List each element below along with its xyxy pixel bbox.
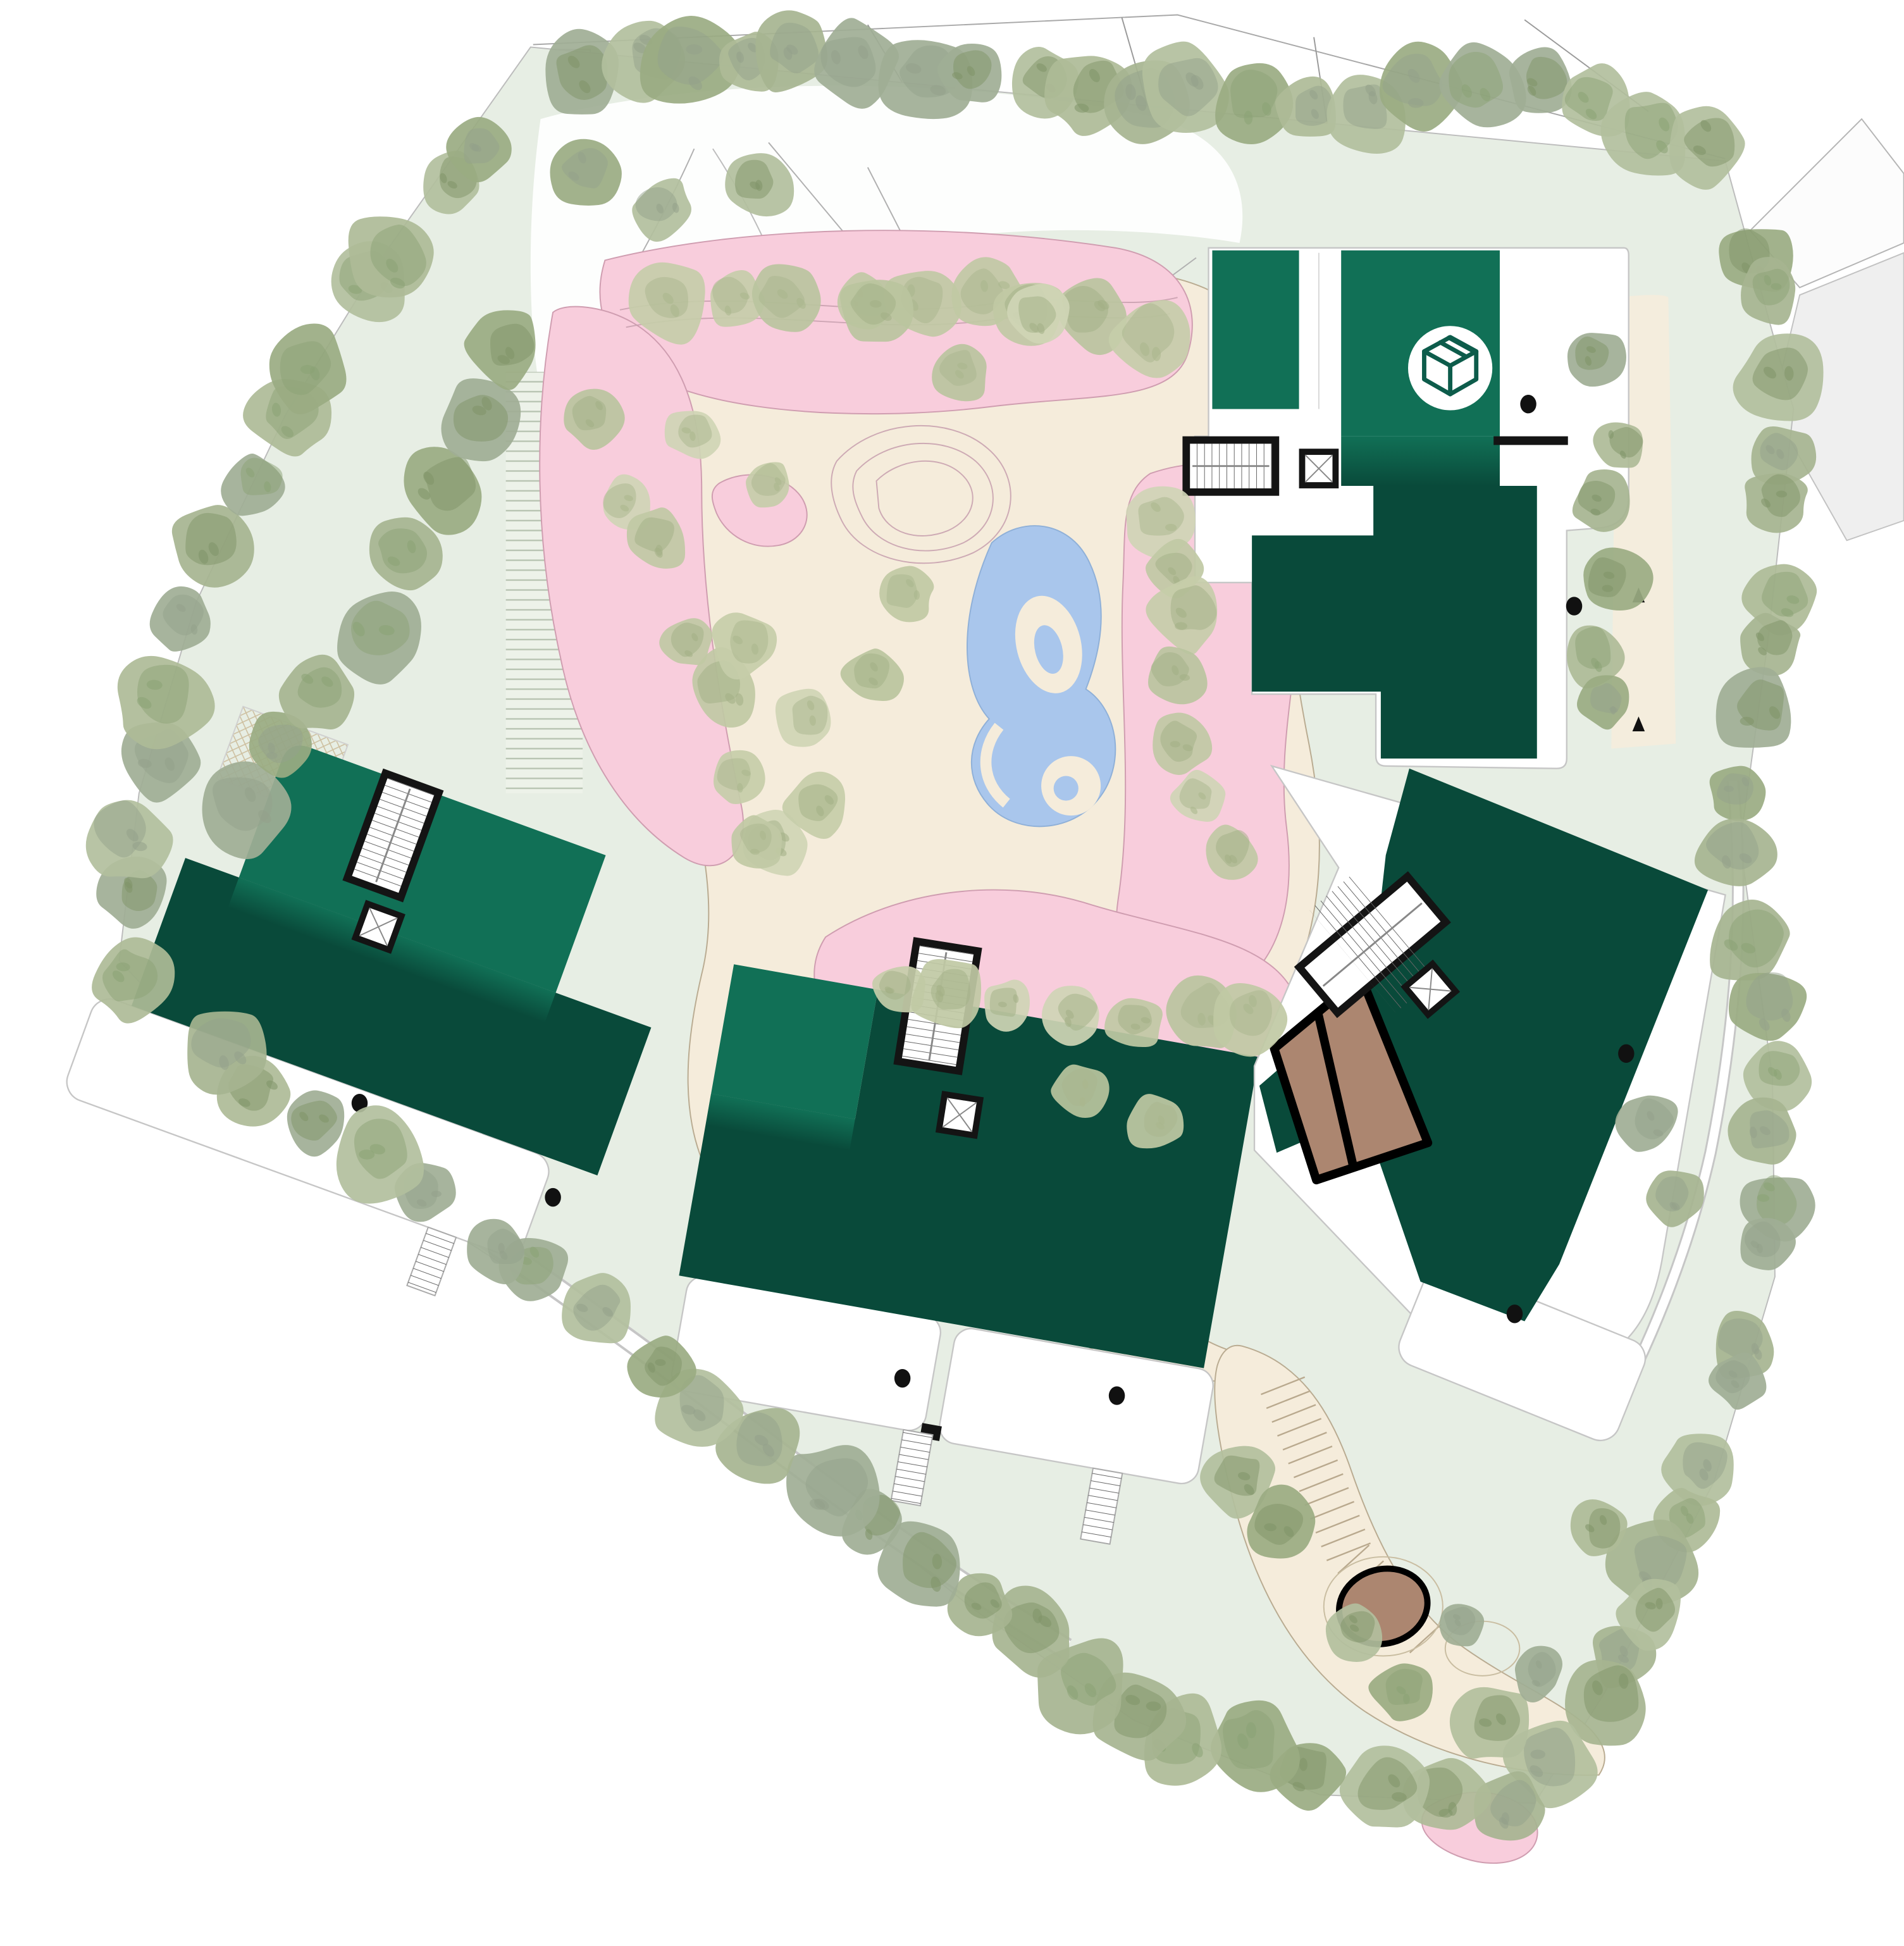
stair-core: [1182, 437, 1279, 496]
tree: [840, 280, 913, 342]
elevator: [1299, 449, 1339, 488]
roof-gradient-seam: [1341, 437, 1500, 486]
roof-drain: [1520, 395, 1536, 413]
roof-drain: [1109, 1386, 1125, 1404]
building-d-roof-upper: [1212, 251, 1299, 409]
tree: [1440, 1604, 1484, 1646]
package-marker[interactable]: [1408, 326, 1492, 410]
roof-drain: [894, 1369, 910, 1387]
pond-inner-pool: [1054, 776, 1079, 800]
tree: [776, 689, 831, 747]
roof-drain: [545, 1188, 560, 1206]
building-b-roof-upper: [711, 964, 878, 1119]
roof-drain: [1507, 1305, 1523, 1323]
tree: [1450, 1687, 1529, 1759]
site-plan-canvas: [0, 0, 1904, 1946]
roof-drain: [1566, 597, 1582, 615]
elevator: [936, 1091, 984, 1139]
roof-drain: [1618, 1044, 1634, 1063]
wall-stub: [1493, 437, 1568, 445]
tree: [1745, 473, 1808, 533]
